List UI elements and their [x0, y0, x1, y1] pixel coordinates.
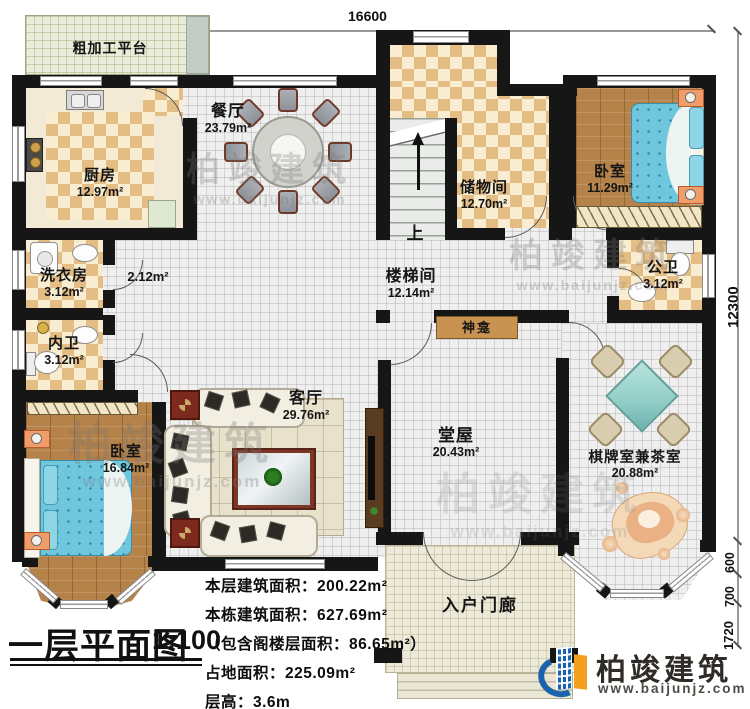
wall — [607, 310, 716, 323]
room-area: 12.97m² — [60, 185, 140, 199]
room-label-inner-bath: 内卫 3.12m² — [28, 336, 100, 367]
side-table-star — [179, 399, 191, 411]
kitchen-fridge — [148, 200, 176, 228]
chess-rug-dot — [658, 548, 670, 560]
coffee-table-plant — [264, 468, 282, 486]
up-text: 上 — [398, 224, 432, 243]
wall — [702, 310, 716, 548]
room-label-stair-hall: 楼梯间 12.14m² — [366, 268, 456, 300]
stair-arrow-shaft — [417, 144, 420, 190]
stove-burner — [30, 142, 41, 153]
info-building-area: 本栋建筑面积：627.69m² — [205, 603, 405, 625]
room-area: 2.12m² — [118, 270, 178, 285]
wall — [103, 315, 115, 335]
title-underline — [10, 664, 202, 666]
wall — [607, 240, 619, 268]
platform-step-band — [186, 16, 209, 74]
room-label-laundry: 洗衣房 3.12m² — [24, 268, 104, 299]
room-name: 卧室 — [88, 444, 164, 461]
dining-chair — [278, 190, 298, 214]
room-name: 入户门廊 — [424, 596, 536, 615]
room-area: 12.14m² — [366, 286, 456, 300]
room-label-bedroom-sw: 卧室 16.84m² — [88, 444, 164, 475]
room-label-public-bath: 公卫 3.12m² — [630, 260, 696, 291]
dim-seg-600: 600 — [723, 541, 737, 573]
inner-bath-lamp — [37, 322, 49, 334]
dim-top-width: 16600 — [348, 8, 387, 24]
laundry-sink — [72, 244, 98, 262]
room-label-porch: 入户门廊 — [424, 596, 536, 615]
room-area: 3.12m² — [28, 353, 100, 367]
chess-rug-dot — [616, 482, 628, 494]
room-area: 3.12m² — [630, 277, 696, 291]
chess-rug-highlight — [638, 510, 660, 528]
window — [40, 76, 102, 86]
room-area: 20.88m² — [576, 466, 694, 480]
nightstand-lamp — [685, 92, 696, 103]
wall — [26, 308, 103, 320]
wall — [549, 87, 563, 240]
room-area: 11.29m² — [570, 181, 650, 195]
tv-screen — [368, 436, 375, 500]
room-name: 堂屋 — [418, 426, 494, 445]
wall — [556, 358, 569, 532]
room-area: 29.76m² — [264, 408, 348, 422]
wall — [103, 360, 115, 390]
room-name: 储物间 — [428, 180, 540, 197]
dim-tick — [707, 24, 716, 33]
wall — [497, 45, 510, 96]
sofa-pillow — [171, 486, 189, 504]
company-logo: 柏竣建筑 www.baijunjz.com — [536, 643, 748, 703]
window — [413, 31, 469, 43]
sofa-pillow — [232, 390, 251, 409]
bed-ne-pillow — [689, 107, 704, 149]
shrine-label: 神龛 — [462, 320, 492, 335]
wall — [607, 296, 619, 323]
side-table-star — [179, 527, 191, 539]
nightstand-lamp — [685, 189, 696, 200]
sofa-pillow — [171, 433, 190, 452]
room-area: 23.79m² — [186, 121, 270, 135]
info-land-area: 占地面积：225.09m² — [205, 661, 405, 683]
stove-burner — [30, 157, 41, 168]
room-name: 餐厅 — [186, 103, 270, 121]
wall — [563, 228, 572, 240]
wall — [26, 390, 138, 402]
room-name: 厨房 — [60, 168, 140, 185]
room-name: 卧室 — [570, 164, 650, 181]
logo-building-icon — [556, 646, 572, 690]
wall — [606, 228, 716, 240]
window — [12, 126, 25, 182]
wall — [445, 118, 457, 240]
dining-table-center — [270, 134, 306, 170]
window — [233, 76, 337, 86]
bedroom-ne-wardrobe — [576, 206, 702, 228]
room-name: 粗加工平台 — [55, 41, 165, 57]
room-area: 12.70m² — [428, 197, 540, 211]
room-label-living: 客厅 29.76m² — [264, 390, 348, 422]
kitchen-sink-basin — [71, 94, 85, 108]
dim-right-height: 12300 — [725, 252, 742, 328]
wall — [376, 532, 423, 545]
bedroom-sw-closet — [27, 402, 138, 415]
floor-plan-canvas: 16600 12300 600 700 1720 — [0, 0, 750, 709]
hallway-area-label: 2.12m² — [118, 270, 178, 285]
logo-building-orange-icon — [574, 654, 587, 690]
bay-window — [60, 600, 108, 609]
room-name: 内卫 — [28, 336, 100, 353]
title-underline — [10, 658, 202, 661]
room-label-chess-tea: 棋牌室兼茶室 20.88m² — [576, 450, 694, 480]
window — [702, 254, 715, 298]
stair-arrow-head — [412, 132, 424, 145]
room-name: 棋牌室兼茶室 — [576, 450, 694, 466]
dining-chair — [224, 142, 248, 162]
room-label-bedroom-ne: 卧室 11.29m² — [570, 164, 650, 195]
info-attic-area: （包含阁楼层面积：86.65m²） — [205, 632, 405, 654]
room-area: 20.43m² — [418, 445, 494, 459]
wall — [376, 310, 390, 323]
wall — [556, 310, 569, 323]
window — [597, 76, 690, 86]
room-label-dining: 餐厅 23.79m² — [186, 103, 270, 135]
room-storage-floor-top — [390, 45, 497, 87]
washing-machine-drum — [37, 251, 53, 267]
window — [130, 76, 178, 86]
chess-rug-dot — [676, 508, 690, 522]
bay-pillar — [700, 540, 716, 552]
kitchen-sink-basin — [87, 94, 101, 108]
nightstand-lamp — [31, 535, 42, 546]
info-floor-height: 层高：3.6m — [205, 690, 405, 709]
tv-plant — [369, 506, 379, 516]
room-name: 客厅 — [264, 390, 348, 408]
room-area: 16.84m² — [88, 461, 164, 475]
info-floor-area: 本层建筑面积：200.22m² — [205, 574, 405, 596]
dimension-line-right — [737, 32, 739, 647]
window — [12, 330, 25, 370]
room-name: 楼梯间 — [366, 268, 456, 286]
kitchen-checker-floor — [46, 112, 154, 220]
room-label-kitchen: 厨房 12.97m² — [60, 168, 140, 199]
wall — [376, 30, 390, 240]
wall — [26, 228, 197, 240]
logo-website: www.baijunjz.com — [598, 681, 747, 696]
sofa-pillow — [239, 525, 258, 544]
shrine-cabinet: 神龛 — [436, 316, 518, 339]
nightstand-lamp — [31, 433, 42, 444]
title-info-block: 本层建筑面积：200.22m² 本栋建筑面积：627.69m² （包含阁楼层面积… — [205, 574, 405, 709]
bay-pillar — [148, 556, 164, 567]
dining-chair — [278, 88, 298, 112]
room-area: 3.12m² — [24, 285, 104, 299]
window — [225, 559, 325, 569]
wall — [103, 290, 115, 308]
chess-rug-dot — [602, 536, 618, 552]
stairs-up-label: 上 — [398, 224, 432, 243]
room-label-storage: 储物间 12.70m² — [428, 180, 540, 211]
room-name: 洗衣房 — [24, 268, 104, 285]
room-name: 公卫 — [630, 260, 696, 277]
bay-window — [610, 589, 664, 598]
bed-sw-pillow — [43, 465, 58, 505]
room-label-platform: 粗加工平台 — [55, 41, 165, 57]
room-label-main-hall: 堂屋 20.43m² — [418, 426, 494, 459]
dim-seg-700: 700 — [723, 575, 737, 607]
dining-chair — [328, 142, 352, 162]
